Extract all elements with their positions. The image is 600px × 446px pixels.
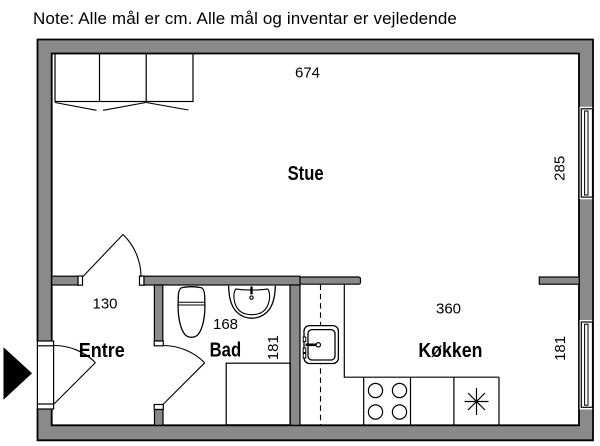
svg-text:168: 168 bbox=[213, 316, 238, 333]
svg-text:181: 181 bbox=[265, 335, 282, 360]
svg-text:Note: Alle mål er cm. Alle mål: Note: Alle mål er cm. Alle mål og invent… bbox=[33, 9, 457, 28]
svg-text:Stue: Stue bbox=[288, 163, 324, 185]
svg-text:181: 181 bbox=[552, 336, 569, 361]
svg-text:130: 130 bbox=[92, 296, 117, 313]
svg-text:674: 674 bbox=[295, 65, 320, 82]
svg-text:Entre: Entre bbox=[79, 340, 125, 362]
svg-text:285: 285 bbox=[552, 156, 569, 181]
svg-text:Køkken: Køkken bbox=[418, 340, 482, 362]
svg-text:Bad: Bad bbox=[210, 340, 242, 362]
svg-text:360: 360 bbox=[436, 301, 461, 318]
